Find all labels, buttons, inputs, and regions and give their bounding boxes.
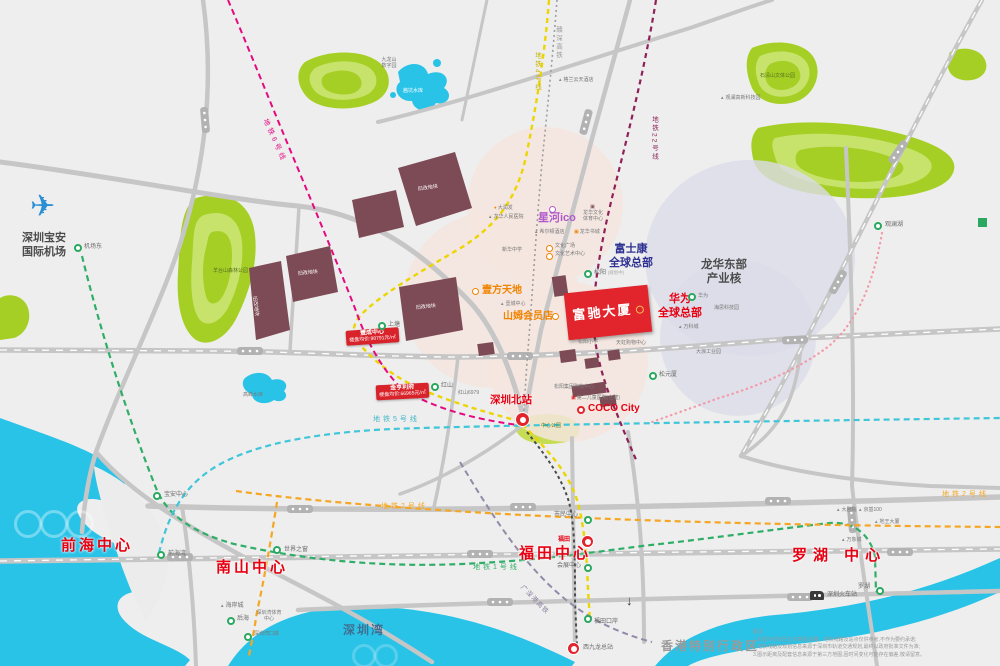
poi-yangtaishan: 羊台山森林公园 bbox=[213, 269, 248, 275]
station-icon-qianhaiwan bbox=[157, 551, 165, 559]
poi-xierdun: 希尔顿酒店 bbox=[534, 229, 564, 236]
watermark-icon bbox=[352, 644, 376, 666]
poi-icon-whgc bbox=[546, 245, 553, 252]
map-notes: 备注: 1.本图为项目区位示意图,道路、地铁线路及站点仅供参考,不作为要约承诺;… bbox=[753, 629, 995, 659]
guanlan-green-marker bbox=[978, 218, 987, 227]
poi-haianchen: 海岸城 bbox=[220, 603, 243, 610]
station-label-songyang: 松阳 (规划中) bbox=[594, 270, 624, 277]
station-icon-guanlanhu bbox=[874, 222, 882, 230]
station-icon-baoan bbox=[153, 492, 161, 500]
border-arrow-icon: ↓ bbox=[626, 594, 633, 609]
property-highlight: 富驰大厦 bbox=[564, 285, 652, 341]
poi-shiqing: 石清山文体公园 bbox=[760, 74, 795, 80]
line-label-2: 地铁2号线 bbox=[381, 503, 428, 511]
poi-darunfa: 大润发 bbox=[494, 205, 513, 212]
shenzhen-north-station-badge bbox=[516, 413, 529, 426]
notes-title: 备注: bbox=[753, 629, 764, 635]
jiulongshan-line2: 数字园 bbox=[378, 64, 400, 70]
poi-dalang: 大浪工业园 bbox=[696, 350, 721, 356]
station-icon-hongshan bbox=[431, 383, 439, 391]
poi-wanxiang: 万象城 bbox=[841, 537, 861, 544]
station-icon-songyang bbox=[584, 270, 592, 278]
station-label-songyuanxia: 松元厦 bbox=[659, 372, 677, 379]
poi-jingji100: 京基100 bbox=[858, 507, 882, 514]
property-name: 富驰大厦 bbox=[572, 303, 633, 324]
station-label-shimin: 市民中心 bbox=[554, 512, 578, 519]
poi-diwang: 地王大厦 bbox=[874, 519, 899, 526]
station-label-jichangdong: 机场东 bbox=[84, 244, 102, 251]
poi-songyang-school: 松阳小学 bbox=[578, 340, 598, 346]
poi-shenzhen-railway: 深圳火车站 bbox=[827, 592, 857, 599]
notes-line2: 2.地铁线路及规划信息来源于深圳市轨道交通规划,最终以政府批准文件为准; bbox=[753, 644, 920, 650]
region-label-qianhai: 前海中心 bbox=[61, 537, 133, 554]
poi-jituan-mall: 松阳集团购物中心 bbox=[554, 385, 594, 391]
longhua-east-label: 龙华东部 产业核 bbox=[698, 258, 750, 287]
property-logo-icon bbox=[635, 305, 644, 314]
poi-dajuyuan: 大剧院 bbox=[836, 507, 856, 514]
notes-line1: 1.本图为项目区位示意图,道路、地铁线路及站点仅供参考,不作为要约承诺; bbox=[753, 637, 916, 643]
poi-zhongxin-park: 中心公园 bbox=[541, 424, 561, 430]
lhwt-line2: 体育中心 bbox=[578, 217, 608, 223]
xinghe-ico-label: 星河ico bbox=[538, 212, 576, 226]
songyang-note: (规划中) bbox=[608, 270, 625, 275]
line-label-ganshen: 赣深高铁 bbox=[554, 26, 561, 60]
station-label-xijiulong: 西九龙总站 bbox=[583, 645, 613, 652]
line-label-5: 地铁5号线 bbox=[373, 416, 420, 424]
location-map: 前海中心 南山中心 福田中心 罗湖 中心 深圳湾 香港特别行政区 ✈ 深圳宝安 … bbox=[0, 0, 1000, 666]
airport-label: 深圳宝安 国际机场 bbox=[22, 232, 66, 260]
poi-qiankeng: 茜坑水库 bbox=[403, 89, 423, 95]
station-label-shangtang: 上塘 bbox=[388, 322, 400, 329]
yifang-label: 壹方天地 bbox=[482, 285, 522, 297]
station-icon-ftka bbox=[584, 615, 592, 623]
region-label-futian: 福田中心 bbox=[519, 545, 591, 562]
station-badge-futian bbox=[582, 536, 593, 547]
poi-wanke: 万科城 bbox=[678, 324, 698, 331]
station-badge-xijiulong bbox=[568, 643, 579, 654]
poi-lhwt: 龙华文化 体育中心 bbox=[578, 205, 608, 222]
poi-xinhua: 新华中学 bbox=[502, 248, 522, 254]
station-icon-shimin bbox=[584, 516, 592, 524]
poi-jiulongshan: 九龙山 数字园 bbox=[378, 58, 400, 70]
station-icon-jichangdong bbox=[74, 244, 82, 252]
station-icon-window bbox=[273, 546, 281, 554]
station-icon-luohu bbox=[876, 587, 884, 595]
foxconn-line1: 富士康 bbox=[596, 243, 666, 257]
poi-tianhong: 天虹购物中心 bbox=[616, 341, 646, 347]
price-card-2: 金亨利府 楼盘均价:66965元/㎡ bbox=[376, 383, 429, 400]
poi-children-hospital: 第二儿童医院(在建) bbox=[571, 396, 620, 402]
region-label-luohu: 罗湖 中心 bbox=[792, 547, 886, 564]
coco-city-icon bbox=[577, 406, 585, 414]
sams-club-label: 山姆会员店 bbox=[503, 311, 553, 323]
poi-gaofeng: 高峰水库 bbox=[243, 393, 263, 399]
sams-club-icon bbox=[552, 313, 559, 320]
hongkong-label: 香港特别行政区 bbox=[661, 640, 759, 654]
poi-yicheng: 壹城中心 bbox=[500, 301, 525, 308]
station-icon-szwan-port bbox=[244, 633, 252, 641]
poi-shucheng: 龙华书城 bbox=[574, 230, 600, 236]
airport-line1: 深圳宝安 bbox=[22, 232, 66, 246]
poi-hongshan6979: 红山6979 bbox=[458, 391, 479, 397]
station-icon-songyuanxia bbox=[649, 372, 657, 380]
notes-line3: 3.图示距离及配套信息来源于第三方地图,因时间变化可能存在偏差,敬请留意。 bbox=[753, 652, 925, 658]
region-label-nanshan: 南山中心 bbox=[216, 559, 288, 576]
station-label-houhai: 后海 bbox=[237, 616, 249, 623]
airport-line2: 国际机场 bbox=[22, 246, 66, 260]
line-label-4: 地铁4号线 bbox=[533, 52, 540, 92]
line-label-1: 地铁1号线 bbox=[473, 564, 520, 572]
poi-whgc: 文化广场 bbox=[555, 244, 575, 250]
foxconn-line2: 全球总部 bbox=[596, 257, 666, 271]
airplane-icon: ✈ bbox=[30, 190, 55, 225]
station-label-szwan-port: 深圳湾口岸 bbox=[254, 632, 279, 638]
shenzhen-north-label: 深圳北站 bbox=[490, 394, 532, 406]
station-label-hongshan: 红山 bbox=[441, 383, 453, 390]
poi-whys: 文化艺术中心 bbox=[555, 252, 585, 258]
station-label-huizhan: 会展中心 bbox=[557, 563, 581, 570]
watermark-icon bbox=[40, 510, 68, 538]
poi-icon-whys bbox=[546, 253, 553, 260]
yifang-icon bbox=[472, 288, 479, 295]
foxconn-hq-label: 富士康 全球总部 bbox=[596, 243, 666, 271]
station-label-guanlanhu: 观澜湖 bbox=[885, 222, 903, 229]
bay-label: 深圳湾 bbox=[343, 624, 385, 638]
songyang-name: 松阳 bbox=[594, 270, 606, 276]
poi-renmin-hospital: 龙华人民医院 bbox=[488, 214, 523, 221]
poi-gelanyuntian: 格兰云天酒店 bbox=[558, 77, 593, 84]
watermark-icon bbox=[374, 644, 398, 666]
train-station-icon bbox=[810, 591, 824, 600]
price-card-2-price: 楼盘均价:66965元/㎡ bbox=[379, 391, 426, 399]
station-icon-huizhan bbox=[584, 564, 592, 572]
poi-guanlan-tech: 观澜高新科技园 bbox=[720, 95, 760, 102]
longhua-line2: 产业核 bbox=[698, 272, 750, 286]
poi-haisi: 海思科技园 bbox=[714, 306, 739, 312]
station-label-ftka: 福田口岸 bbox=[594, 619, 618, 626]
station-icon-huawei bbox=[688, 293, 696, 301]
station-label-window: 世界之窗 bbox=[284, 547, 308, 554]
watermark-icon bbox=[14, 510, 42, 538]
station-label-qianhaiwan: 前海湾 bbox=[168, 551, 186, 558]
poi-szwan-sports: 深圳湾体育中心 bbox=[256, 611, 282, 623]
station-label-futian: 福田 bbox=[558, 537, 570, 544]
station-label-baoan: 宝安中心 bbox=[164, 492, 188, 499]
longhua-line1: 龙华东部 bbox=[698, 258, 750, 272]
station-icon-houhai bbox=[227, 617, 235, 625]
station-label-huawei: 华为 bbox=[698, 294, 708, 300]
line-label-2b: 地铁2号线 bbox=[942, 491, 989, 499]
station-icon-shangtang bbox=[378, 322, 386, 330]
huawei-line2: 全球总部 bbox=[652, 307, 708, 321]
watermark-icon bbox=[66, 510, 94, 538]
line-label-22: 地铁22号线 bbox=[650, 116, 657, 161]
coco-city-label: COCO City bbox=[588, 403, 640, 415]
station-label-luohu: 罗湖 bbox=[858, 584, 870, 591]
